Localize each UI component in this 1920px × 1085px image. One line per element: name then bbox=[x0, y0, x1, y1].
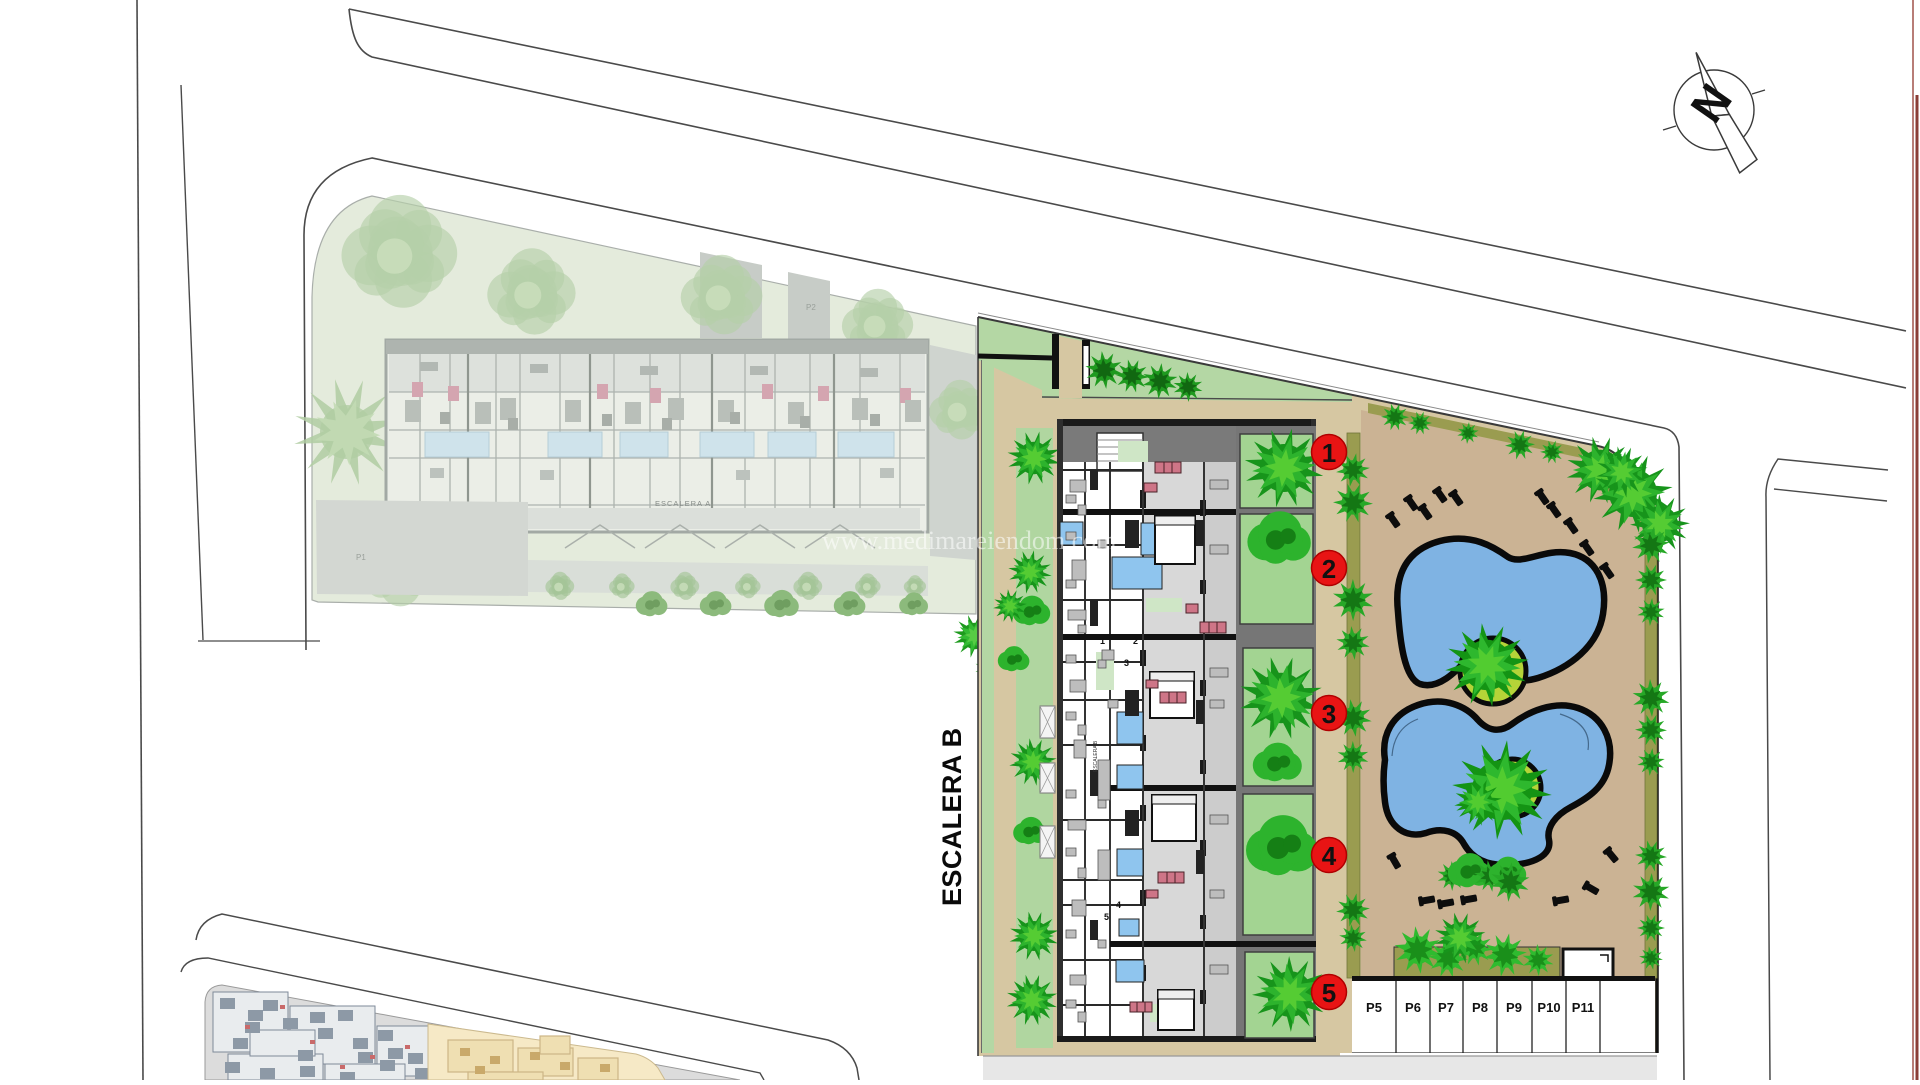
svg-text:www.medimareiendom.com: www.medimareiendom.com bbox=[822, 526, 1116, 555]
svg-text:1: 1 bbox=[1322, 438, 1336, 468]
svg-text:3: 3 bbox=[1322, 699, 1336, 729]
svg-text:P5: P5 bbox=[1366, 1000, 1382, 1015]
svg-text:P11: P11 bbox=[1572, 1000, 1594, 1015]
svg-text:2: 2 bbox=[1133, 636, 1138, 646]
svg-text:4: 4 bbox=[1116, 900, 1121, 910]
svg-text:ESCALERA A: ESCALERA A bbox=[655, 499, 711, 508]
svg-text:1: 1 bbox=[1100, 636, 1105, 646]
svg-text:ESCALERA B: ESCALERA B bbox=[1093, 740, 1099, 772]
svg-text:P7: P7 bbox=[1438, 1000, 1454, 1015]
svg-text:4: 4 bbox=[1322, 841, 1337, 871]
svg-text:ESCALERA B: ESCALERA B bbox=[937, 727, 967, 906]
svg-text:5: 5 bbox=[1104, 912, 1109, 922]
svg-text:P10: P10 bbox=[1537, 1000, 1560, 1015]
svg-text:P2: P2 bbox=[806, 303, 816, 312]
svg-text:P1: P1 bbox=[356, 553, 366, 562]
svg-text:P8: P8 bbox=[1472, 1000, 1488, 1015]
svg-text:P9: P9 bbox=[1506, 1000, 1522, 1015]
svg-text:5: 5 bbox=[1322, 978, 1336, 1008]
svg-text:3: 3 bbox=[1124, 658, 1129, 668]
svg-text:P6: P6 bbox=[1405, 1000, 1421, 1015]
svg-text:2: 2 bbox=[1322, 554, 1336, 584]
